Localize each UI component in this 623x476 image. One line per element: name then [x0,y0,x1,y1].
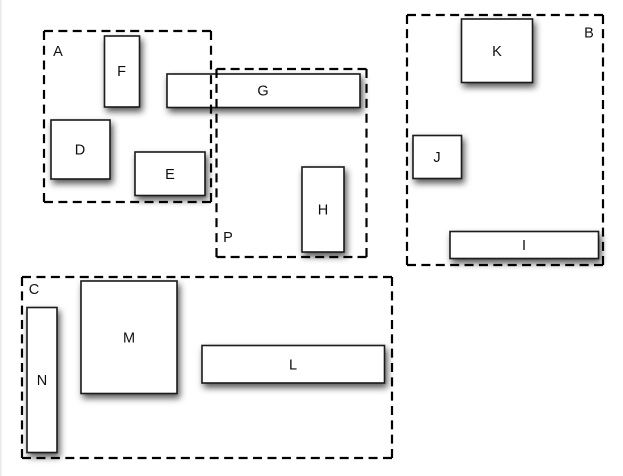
svg-text:F: F [117,64,126,80]
svg-text:J: J [433,150,440,166]
svg-text:M: M [123,331,135,347]
svg-text:L: L [289,358,297,374]
svg-text:E: E [165,167,175,183]
svg-text:N: N [37,373,47,389]
svg-text:A: A [53,44,63,60]
svg-text:D: D [75,143,85,159]
svg-text:K: K [492,44,502,60]
svg-text:P: P [223,230,233,246]
svg-text:B: B [584,26,594,42]
svg-text:C: C [29,282,39,298]
svg-text:I: I [522,238,526,254]
svg-text:H: H [318,203,328,219]
svg-text:G: G [257,84,268,100]
